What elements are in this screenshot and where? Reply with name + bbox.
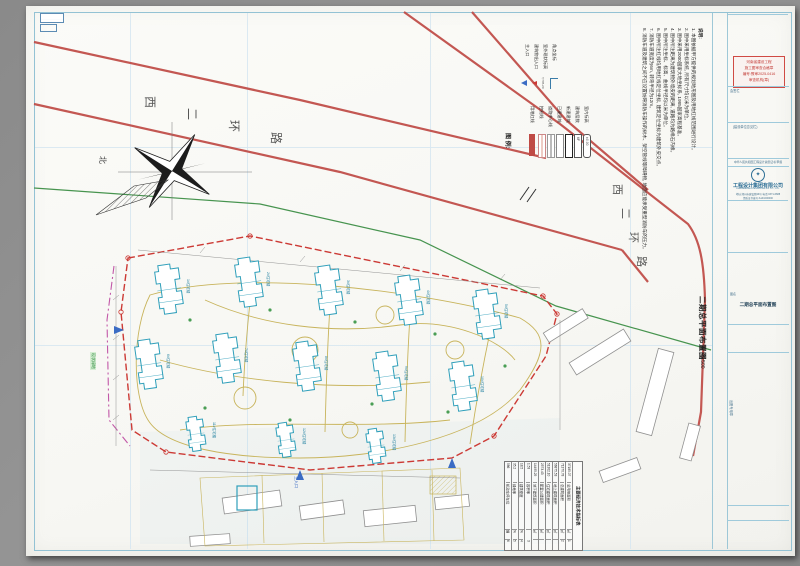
- countersign-label: 会签栏: [730, 88, 740, 93]
- revision-table: [728, 14, 788, 53]
- table-cell-name: 住宅建筑面积: [546, 484, 551, 530]
- road-name-char: 环: [226, 120, 243, 132]
- building-label: 1#住宅楼: [185, 279, 190, 293]
- drawing-caption: 二期总平面布置图: [697, 296, 708, 360]
- notes-header: 说明:: [697, 28, 704, 262]
- building-footprint: [314, 264, 345, 316]
- green-area-label: 现状绿地: [90, 352, 96, 370]
- drawing-name-label: 图名: [730, 292, 736, 296]
- building-label: 9#住宅楼: [403, 366, 408, 380]
- entry-arrow-icon: [521, 80, 527, 86]
- drawing-meta-table: [728, 324, 788, 353]
- client-opinion-label: (建设单位意见栏): [733, 124, 757, 129]
- table-row-strip: 18.5建筑密度%4: [519, 462, 526, 550]
- project-info-table: [728, 252, 788, 291]
- legend-mark-label: 主入口: [524, 44, 530, 57]
- note-line: 6. 图中所注红线均用地红线定位坐标, 建筑定位坐标为建筑外皮交点。: [655, 28, 662, 262]
- review-stamp: 河南省建设工程 施工图审查合格章 编号:豫审2025-0416 审查机构(章): [733, 56, 785, 88]
- building-label: 10#住宅楼: [479, 376, 484, 392]
- legend-item-label: 控制线: [538, 106, 544, 119]
- note-line: 5. 图中所注坐标、标高、曲线半径均以米为单位。: [662, 28, 669, 262]
- table-cell-value: 586: [506, 463, 510, 483]
- legend-item-swatch: [565, 134, 573, 158]
- legend-mark-label: 室外现状标高: [542, 44, 548, 69]
- table-cell-unit: 辆: [505, 530, 510, 540]
- scanned-drawing-screenshot: 北 二期总平面布置图 1:500 现状绿地 主入口 主入口建筑物出入口室外现状标…: [0, 0, 800, 566]
- table-row-strip: 586机动车停车位辆6: [505, 462, 512, 550]
- table-row-strip: 35.2绿地率%5: [512, 462, 519, 550]
- building-entry-icon: [532, 81, 537, 85]
- legend-item-label: 新建建筑: [565, 106, 571, 123]
- table-cell-no: 6: [506, 540, 510, 549]
- table-cell-name: 机动车停车位: [505, 484, 510, 530]
- table-cell-name: 容积率: [526, 484, 531, 530]
- road-name-char: 环: [626, 232, 642, 243]
- legend-item-label: 室内标高: [583, 106, 589, 123]
- table-cell-unit: ㎡: [546, 530, 551, 540]
- legend-item-swatch: [547, 134, 555, 158]
- table-cell-no: 2: [560, 540, 564, 549]
- note-line: 3. 图中采用2000国家大地坐标系, 1985国家高程基准。: [676, 28, 683, 262]
- table-cell-value: 37185.07: [567, 463, 571, 483]
- notes-block: 说明:1. 本图依据甲方提供的规划地形图及用地红线范围进行设计。2. 图中采用坐…: [634, 28, 704, 262]
- building-footprint: [394, 274, 425, 326]
- table-cell-unit: ㎡: [560, 530, 565, 540]
- table-cell-no: 4: [519, 540, 523, 549]
- table-cell-name: 总用地面积: [567, 484, 572, 530]
- road-name-char: 二: [618, 208, 634, 219]
- table-cell-value: 71370.78: [560, 463, 564, 483]
- note-line: 4. 图中所注距离为建筑物外墙皮的距离, 道路均为路缘石内缘。: [669, 28, 676, 262]
- building-footprint: [372, 350, 403, 402]
- building-label: 8#住宅楼: [323, 356, 328, 370]
- control-line: [107, 266, 130, 446]
- legend-item-swatch: [556, 134, 564, 158]
- indicators-table: 586机动车停车位辆635.2绿地率%518.5建筑密度%41.53容积率314…: [504, 461, 583, 551]
- table-title: 主要经济技术指标表: [574, 486, 580, 526]
- table-cell-value: 35.2: [513, 463, 517, 483]
- stamp-line: 审查机构(章): [734, 77, 784, 83]
- table-cell-unit: ㎡: [533, 530, 538, 540]
- table-row-strip: 37185.07总用地面积㎡1: [566, 462, 573, 550]
- legend-item-label: 建筑层数: [574, 106, 580, 123]
- table-cell-unit: ㎡: [539, 530, 544, 540]
- building-footprint: [234, 256, 265, 308]
- note-line: 8. 消防车道及建筑之间不应设置妨碍消防车操作的树木、架空管线等障碍物, 地面应…: [641, 28, 648, 262]
- table-cell-name: 地下建筑面积: [533, 484, 538, 530]
- hatched-structure: [430, 476, 456, 494]
- certificate-line: 中华人民共和国工程设计资质证书 甲级: [728, 160, 788, 164]
- table-cell-value: 2573.43: [540, 463, 544, 483]
- legend-item-swatch: [538, 134, 546, 158]
- building-footprint: [134, 338, 165, 390]
- building-label: 3#住宅楼: [345, 280, 350, 294]
- table-cell-name: 建筑密度: [519, 484, 524, 530]
- note-line: 7. 消防车道宽度为6m, 转弯半径为12m。: [648, 28, 655, 262]
- ring-road-lines: [34, 12, 705, 456]
- legend-mark-label: 建筑物出入口: [533, 44, 539, 69]
- table-cell-unit: ㎡: [567, 530, 572, 540]
- table-cell-unit: ㎡: [553, 530, 558, 540]
- table-cell-value: 18.5: [519, 463, 523, 483]
- main-entrance-label: 主入口: [293, 476, 299, 488]
- road-name-char: 二: [184, 108, 201, 120]
- legend-item-label: 已建建筑: [556, 106, 562, 123]
- table-cell-name: 总建筑面积: [560, 484, 565, 530]
- building-label: 2#住宅楼: [265, 272, 270, 286]
- table-row-strip: 1.53容积率3: [525, 462, 532, 550]
- corner-coord-icon: [550, 78, 558, 89]
- table-cell-unit: %: [519, 530, 523, 540]
- company-logo: ✦: [751, 168, 765, 182]
- plot-stamp-label: 出图专用章: [729, 400, 734, 416]
- table-cell-unit: %: [513, 530, 517, 540]
- drawing-name: 二期总平面布置图: [728, 302, 788, 308]
- legend-item-swatch: [529, 134, 535, 156]
- building-label: 11#住宅楼: [211, 422, 216, 438]
- legend-item-label: 道路中心线: [547, 106, 553, 127]
- company-name-en: ENGINEERING DESIGN GROUP CO., LTD.: [728, 188, 788, 190]
- north-label: 北: [97, 156, 108, 164]
- table-cell-value: 56875.53: [553, 463, 557, 483]
- green-line: [34, 188, 711, 350]
- legend-item-swatch: 6F: [574, 134, 582, 158]
- legend-swatch-sample: 6F: [576, 137, 580, 141]
- table-cell-no: 5: [513, 540, 517, 549]
- table-row-strip: 14495.25地下建筑面积㎡: [532, 462, 539, 550]
- building-label: 13#住宅楼: [391, 434, 396, 450]
- road-name-char: 路: [268, 132, 285, 144]
- legend-item-swatch: ±0.00: [583, 134, 591, 158]
- table-row-strip: 51302.10住宅建筑面积㎡: [546, 462, 553, 550]
- table-cell-name: 配套公建面积: [539, 484, 544, 530]
- building-footprint: [448, 360, 479, 412]
- note-line: 2. 图中采用坐标系统, 所有尺寸均以米为单位。: [683, 28, 690, 262]
- legend-swatch-sample: ±0.00: [585, 137, 589, 145]
- road-name-char: 西: [610, 184, 626, 195]
- road-name-char: 路: [634, 256, 650, 267]
- building-footprint: [154, 263, 185, 315]
- building-label: 5#住宅楼: [503, 304, 508, 318]
- table-cell-no: 3: [526, 540, 530, 549]
- legend-item-label: 用地红线: [529, 106, 535, 123]
- building-label: 4#住宅楼: [425, 290, 430, 304]
- drawing-scale: 1:500: [699, 356, 705, 369]
- table-row-strip: 71370.78总建筑面积㎡2: [559, 462, 566, 550]
- table-row-strip: 2573.43配套公建面积㎡: [539, 462, 546, 550]
- table-cell-no: 1: [567, 540, 571, 549]
- building-label: 7#住宅楼: [243, 348, 248, 362]
- table-cell-name: 地上建筑面积: [553, 484, 558, 530]
- spot-level-icon: ▽765.20: [541, 77, 545, 88]
- building-label: 6#住宅楼: [165, 354, 170, 368]
- building-footprint: [212, 332, 243, 384]
- table-cell-value: 1.53: [526, 463, 530, 483]
- signature-table: [728, 200, 788, 253]
- legend-header: 图 例:: [504, 133, 513, 149]
- road-name-char: 西: [142, 96, 159, 108]
- table-row-strip: 56875.53地上建筑面积㎡: [553, 462, 560, 550]
- table-cell-value: 51302.10: [547, 463, 551, 483]
- table-cell-value: 14495.25: [533, 463, 537, 483]
- building-label: 12#住宅楼: [301, 428, 306, 444]
- break-mark: [520, 187, 536, 202]
- table-title-strip: 主要经济技术指标表: [573, 462, 582, 550]
- note-line: 1. 本图依据甲方提供的规划地形图及用地红线范围进行设计。: [690, 28, 697, 262]
- table-cell-name: 绿地率: [512, 484, 517, 530]
- building-footprint: [472, 288, 503, 340]
- legend-mark-label: 角点坐标: [551, 44, 557, 61]
